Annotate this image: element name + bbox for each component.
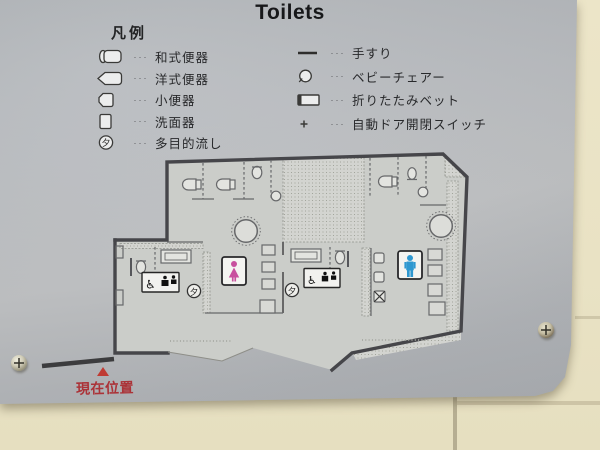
squat-toilet-fixture xyxy=(335,251,344,264)
multipurpose-marker-women: 夕 xyxy=(187,284,200,297)
washbasin-fixtures xyxy=(260,245,275,313)
screw-bottom-left xyxy=(11,355,27,371)
women-pictogram xyxy=(222,257,246,285)
squat-toilet-fixture xyxy=(136,261,145,274)
baby-chair-fixture xyxy=(271,191,281,201)
screw-right xyxy=(538,322,554,338)
folding-bed-fixture xyxy=(161,250,191,263)
svg-text:♿: ♿ xyxy=(307,274,317,287)
svg-text:夕: 夕 xyxy=(190,287,199,298)
center-multipurpose-room xyxy=(283,158,364,242)
men-pictogram xyxy=(398,251,422,279)
svg-text:♿: ♿ xyxy=(145,278,156,292)
current-location-marker xyxy=(97,367,109,376)
accessible-box-men: ♿ xyxy=(304,269,340,288)
urinal-fixtures xyxy=(374,253,385,302)
svg-text:夕: 夕 xyxy=(288,286,297,297)
baby-chair-fixture xyxy=(418,187,428,197)
current-location-label: 現在位置 xyxy=(70,377,140,399)
squat-toilet-fixture xyxy=(252,166,262,178)
folding-bed-fixture xyxy=(291,249,321,262)
entry-wall-bar xyxy=(42,359,114,366)
multipurpose-marker-men: 夕 xyxy=(285,283,298,296)
photo-of-toilet-sign: Toilets 凡例 ··· 和式便器 ··· 洋式便器 ··· 小便器 xyxy=(0,0,600,450)
accessible-box-women: ♿ xyxy=(142,273,179,293)
